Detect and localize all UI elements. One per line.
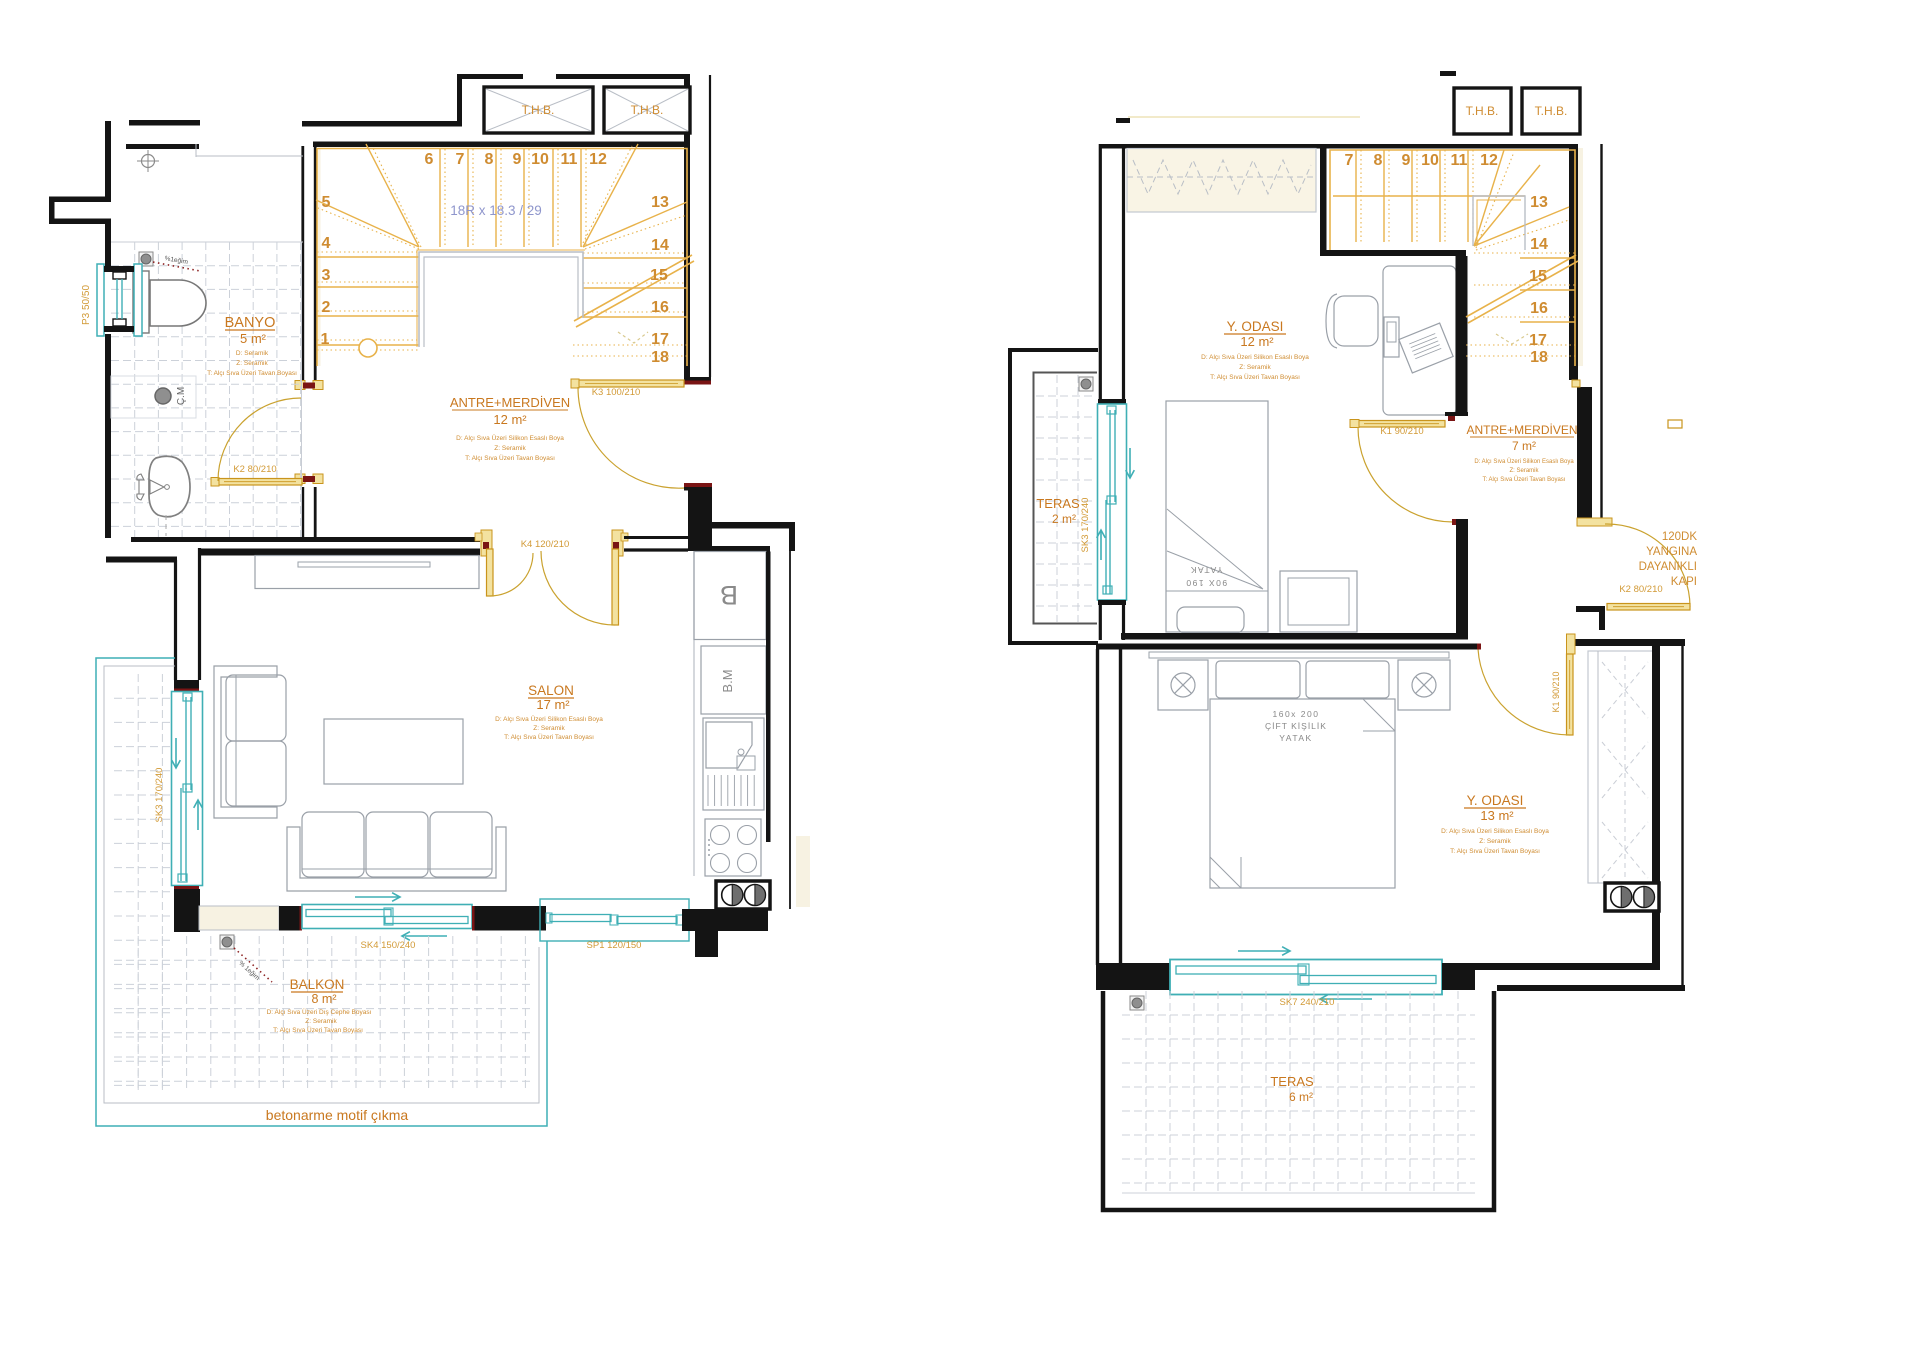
- svg-text:17 m²: 17 m²: [536, 697, 570, 712]
- svg-text:BANYO: BANYO: [225, 315, 276, 331]
- svg-text:T: Alçı Sıva Üzeri Tavan Boyas: T: Alçı Sıva Üzeri Tavan Boyası: [465, 454, 555, 462]
- svg-text:DAYANIKLI: DAYANIKLI: [1639, 561, 1697, 573]
- svg-text:YATAK: YATAK: [1279, 733, 1312, 743]
- svg-text:K4 120/210: K4 120/210: [521, 539, 570, 550]
- svg-text:13: 13: [651, 194, 669, 211]
- svg-text:T: Alçı Sıva Üzeri Tavan Boyas: T: Alçı Sıva Üzeri Tavan Boyası: [1483, 476, 1566, 483]
- svg-text:15: 15: [1529, 268, 1547, 285]
- svg-text:7: 7: [456, 151, 465, 168]
- svg-text:12 m²: 12 m²: [1240, 334, 1274, 349]
- svg-text:SP1 120/150: SP1 120/150: [587, 940, 642, 951]
- svg-text:SALON: SALON: [528, 683, 574, 698]
- svg-text:7: 7: [1345, 152, 1354, 169]
- svg-text:10: 10: [531, 151, 549, 168]
- svg-text:2: 2: [322, 299, 331, 316]
- svg-text:12: 12: [589, 151, 607, 168]
- svg-text:ÇİFT KİŞİLİK: ÇİFT KİŞİLİK: [1265, 721, 1327, 731]
- svg-text:T.H.B.: T.H.B.: [631, 103, 664, 117]
- svg-text:Z: Seramik: Z: Seramik: [1509, 468, 1539, 474]
- svg-text:K3 100/210: K3 100/210: [592, 387, 641, 398]
- svg-text:18R x 18.3 / 29: 18R x 18.3 / 29: [450, 203, 542, 218]
- svg-text:Z: Seramik: Z: Seramik: [1479, 838, 1511, 845]
- svg-text:6 m²: 6 m²: [1289, 1090, 1313, 1104]
- svg-text:Z: Seramik: Z: Seramik: [494, 445, 526, 452]
- svg-text:D: Alçı Sıva Üzeri Silikon Esa: D: Alçı Sıva Üzeri Silikon Esaslı Boya: [1441, 827, 1549, 835]
- svg-text:16: 16: [651, 299, 669, 316]
- svg-text:18: 18: [1530, 349, 1548, 366]
- svg-text:ANTRE+MERDİVEN: ANTRE+MERDİVEN: [450, 395, 570, 410]
- svg-text:ANTRE+MERDİVEN: ANTRE+MERDİVEN: [1466, 423, 1577, 437]
- svg-text:SK7 240/210: SK7 240/210: [1280, 997, 1335, 1008]
- svg-text:T: Alçı Sıva Üzeri Tavan Boyas: T: Alçı Sıva Üzeri Tavan Boyası: [504, 733, 594, 741]
- svg-text:SK4 150/240: SK4 150/240: [361, 940, 416, 951]
- svg-text:14: 14: [651, 237, 669, 254]
- svg-text:3: 3: [322, 267, 331, 284]
- svg-text:BALKON: BALKON: [290, 977, 345, 992]
- svg-text:12: 12: [1480, 152, 1498, 169]
- svg-text:Y. ODASI: Y. ODASI: [1227, 319, 1284, 334]
- svg-text:K2 80/210: K2 80/210: [1619, 584, 1662, 595]
- svg-text:K2 80/210: K2 80/210: [233, 464, 276, 475]
- svg-text:9: 9: [513, 151, 522, 168]
- svg-text:K1 90/210: K1 90/210: [1551, 671, 1561, 712]
- svg-text:13 m²: 13 m²: [1480, 808, 1514, 823]
- svg-text:12 m²: 12 m²: [493, 412, 527, 427]
- svg-text:YATAK: YATAK: [1189, 565, 1222, 575]
- svg-text:10: 10: [1421, 152, 1439, 169]
- svg-text:YANGINA: YANGINA: [1646, 546, 1697, 558]
- svg-text:TERAS: TERAS: [1270, 1074, 1314, 1089]
- svg-text:120DK: 120DK: [1662, 531, 1697, 543]
- svg-text:D: Alçı Sıva Üzeri Dış Cephe B: D: Alçı Sıva Üzeri Dış Cephe Boyası: [267, 1008, 372, 1016]
- svg-text:betonarme motif çıkma: betonarme motif çıkma: [266, 1107, 409, 1123]
- svg-text:SK3 170/240: SK3 170/240: [1080, 498, 1091, 553]
- svg-text:4: 4: [322, 235, 331, 252]
- svg-text:17: 17: [651, 331, 669, 348]
- svg-text:T: Alçı Sıva Üzeri Tavan Boyas: T: Alçı Sıva Üzeri Tavan Boyası: [273, 1026, 363, 1034]
- svg-text:14: 14: [1530, 236, 1548, 253]
- svg-text:8: 8: [485, 151, 494, 168]
- svg-text:P3 50/50: P3 50/50: [81, 285, 92, 325]
- svg-text:D: Alçı Sıva Üzeri Silikon Esa: D: Alçı Sıva Üzeri Silikon Esaslı Boya: [1474, 458, 1574, 465]
- svg-text:Z: Seramik: Z: Seramik: [533, 725, 565, 732]
- svg-text:5 m²: 5 m²: [240, 331, 267, 346]
- svg-text:1: 1: [321, 331, 330, 348]
- svg-text:90X 190: 90X 190: [1185, 578, 1227, 588]
- svg-text:2 m²: 2 m²: [1052, 512, 1076, 526]
- svg-text:8: 8: [1374, 152, 1383, 169]
- svg-text:T: Alçı Sıva Üzeri Tavan Boyas: T: Alçı Sıva Üzeri Tavan Boyası: [1450, 847, 1540, 855]
- svg-text:TERAS: TERAS: [1036, 496, 1080, 511]
- svg-text:D: Seramik: D: Seramik: [236, 350, 269, 357]
- svg-text:Z: Seramik: Z: Seramik: [1239, 364, 1271, 371]
- svg-text:T.H.B.: T.H.B.: [1535, 104, 1568, 118]
- svg-text:5: 5: [322, 194, 331, 211]
- svg-text:T: Alçı Sıva Üzeri Tavan Boyas: T: Alçı Sıva Üzeri Tavan Boyası: [1210, 373, 1300, 381]
- svg-text:K1 90/210: K1 90/210: [1380, 426, 1423, 437]
- svg-text:7 m²: 7 m²: [1512, 439, 1536, 453]
- svg-text:160x 200: 160x 200: [1273, 709, 1320, 719]
- svg-text:6: 6: [425, 151, 434, 168]
- svg-text:Y. ODASI: Y. ODASI: [1467, 793, 1524, 808]
- svg-text:T: Alçı Sıva Üzeri Tavan Boyas: T: Alçı Sıva Üzeri Tavan Boyası: [207, 369, 297, 377]
- svg-text:18: 18: [651, 349, 669, 366]
- svg-text:16: 16: [1530, 300, 1548, 317]
- svg-text:Z: Seramik: Z: Seramik: [236, 360, 268, 367]
- svg-text:11: 11: [1451, 152, 1468, 169]
- svg-text:9: 9: [1402, 152, 1411, 169]
- svg-text:17: 17: [1529, 332, 1547, 349]
- svg-text:B.M: B.M: [720, 669, 735, 692]
- svg-text:D: Alçı Sıva Üzeri Silikon Esa: D: Alçı Sıva Üzeri Silikon Esaslı Boya: [495, 715, 603, 723]
- svg-text:B: B: [720, 580, 738, 610]
- svg-text:KAPI: KAPI: [1671, 576, 1697, 588]
- svg-text:Z: Seramik: Z: Seramik: [305, 1018, 337, 1025]
- svg-text:15: 15: [650, 267, 668, 284]
- svg-text:8 m²: 8 m²: [312, 992, 337, 1006]
- svg-text:T.H.B.: T.H.B.: [1466, 104, 1499, 118]
- svg-text:Ç.M: Ç.M: [176, 387, 187, 405]
- svg-text:D: Alçı Sıva Üzeri Silikon Esa: D: Alçı Sıva Üzeri Silikon Esaslı Boya: [1201, 353, 1309, 361]
- svg-text:13: 13: [1530, 194, 1548, 211]
- svg-text:11: 11: [561, 151, 578, 168]
- svg-text:D: Alçı Sıva Üzeri Silikon Esa: D: Alçı Sıva Üzeri Silikon Esaslı Boya: [456, 434, 564, 442]
- svg-text:T.H.B.: T.H.B.: [522, 103, 555, 117]
